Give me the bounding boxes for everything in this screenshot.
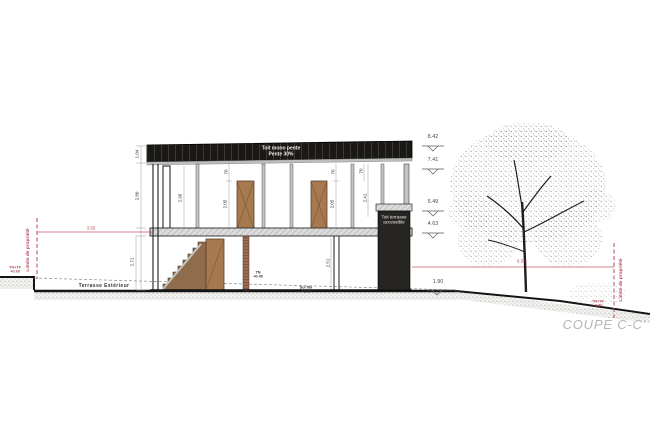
right-tn-line2: -0.90 <box>594 304 603 308</box>
dim-door-b: 2.05 <box>329 200 334 209</box>
setback-value: 3.55 <box>87 225 96 230</box>
tree-foliage <box>486 122 570 162</box>
roof-label-line2: Pente 30% <box>268 151 293 157</box>
level-ground: 1.90 <box>433 279 444 285</box>
upper-door-left <box>237 181 254 229</box>
post <box>290 164 293 228</box>
distance-value: 6.5m <box>517 258 527 263</box>
right-limit-label: Limite de propriété <box>619 258 625 301</box>
level-marker-roof-eave <box>422 169 444 174</box>
level-marker-terrace-slab <box>422 233 444 238</box>
dim-upper-height: 2.80 <box>134 192 139 201</box>
terrace-slab <box>376 204 412 211</box>
chimney-duct <box>163 166 170 228</box>
right-limit-level: TN+TF-0.90 <box>592 300 604 309</box>
dim-door-a: 2.05 <box>222 200 227 209</box>
drawing-title: COUPE C-C' <box>558 318 646 333</box>
tree <box>448 122 626 306</box>
dim-lintel-a: 70 <box>223 169 228 174</box>
terrace-box-line1: Toit terrasse <box>381 215 406 220</box>
terrace-box-line2: accessible <box>383 220 404 225</box>
section-drawing: Toit mono pentePente 30% Toit terrasseac… <box>0 0 650 446</box>
ground-fill-center <box>34 291 456 300</box>
post <box>196 164 199 228</box>
dim-upper-interior: 2.96 <box>177 194 182 203</box>
floor-slab <box>150 228 412 236</box>
post <box>351 164 354 228</box>
tree-foliage <box>448 194 492 230</box>
post <box>262 164 265 228</box>
dim-lower-height: 2.71 <box>129 258 134 267</box>
ground-fill-left <box>0 278 34 289</box>
lower-door <box>206 239 224 290</box>
left-tn-line2: +0.60 <box>10 270 20 274</box>
level-roof-eave: 7.41 <box>428 157 439 163</box>
tree-foliage <box>576 190 616 222</box>
dim-roof-height: 1.04 <box>134 150 139 159</box>
level-marker-terrace-top <box>422 211 444 216</box>
dim-right-interior: 2.41 <box>362 194 367 203</box>
finished-floor-label: Sol fini+0.10 <box>300 286 313 295</box>
left-limit-level: TN+TF+0.60 <box>9 266 21 275</box>
upper-door-right <box>311 181 327 229</box>
roof-label: Toit mono pentePente 30% <box>262 146 301 158</box>
lower-right-wall <box>334 236 339 291</box>
tn-level-label: TN+0.40 <box>253 271 263 280</box>
level-roof-top: 8.42 <box>428 134 439 140</box>
dim-lower-interior: 2.51 <box>325 259 330 268</box>
level-terrace-top: 5.49 <box>428 199 439 205</box>
left-limit-label: Limite de propriété <box>26 228 32 271</box>
drawing-linework <box>0 0 650 446</box>
terrace-exterior-label: Terrasse Extérieur <box>79 284 130 290</box>
level-marker-roof-top <box>422 146 444 151</box>
dim-lintel-c: 70 <box>358 168 363 173</box>
tn-line2: +0.40 <box>253 275 263 279</box>
left-glazing <box>153 164 158 291</box>
terrace-box-label: Toit terrasseaccessible <box>381 215 406 226</box>
sol-line2: +0.10 <box>301 290 311 294</box>
dim-lintel-b: 70 <box>330 169 335 174</box>
brick-pier <box>243 236 249 291</box>
building-section <box>147 141 412 291</box>
level-terrace-slab: 4.63 <box>428 221 439 227</box>
